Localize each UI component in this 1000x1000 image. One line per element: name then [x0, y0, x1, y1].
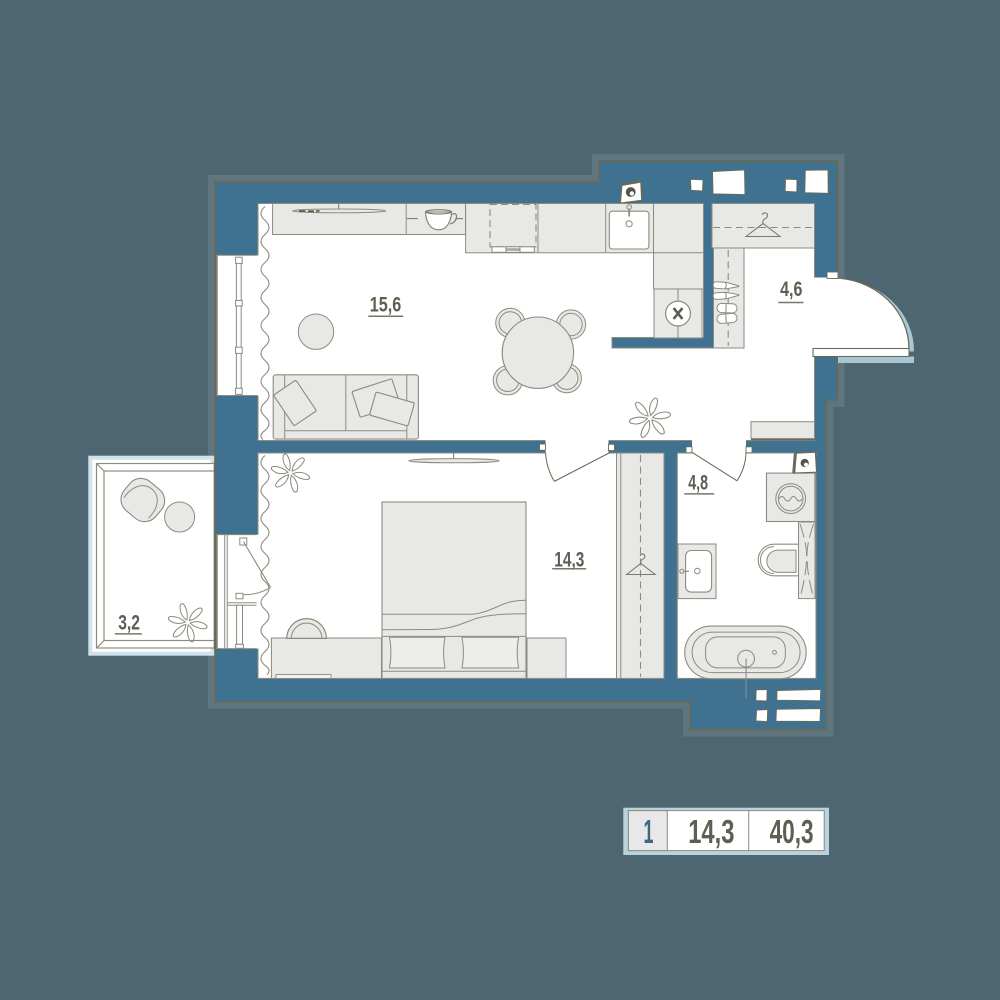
svg-text:4,6: 4,6: [780, 278, 802, 301]
svg-text:1: 1: [644, 814, 654, 851]
svg-text:4,8: 4,8: [688, 472, 708, 495]
svg-text:15,6: 15,6: [370, 294, 402, 317]
svg-text:40,3: 40,3: [770, 814, 814, 851]
svg-text:3,2: 3,2: [118, 612, 140, 635]
svg-text:14,3: 14,3: [688, 814, 734, 851]
